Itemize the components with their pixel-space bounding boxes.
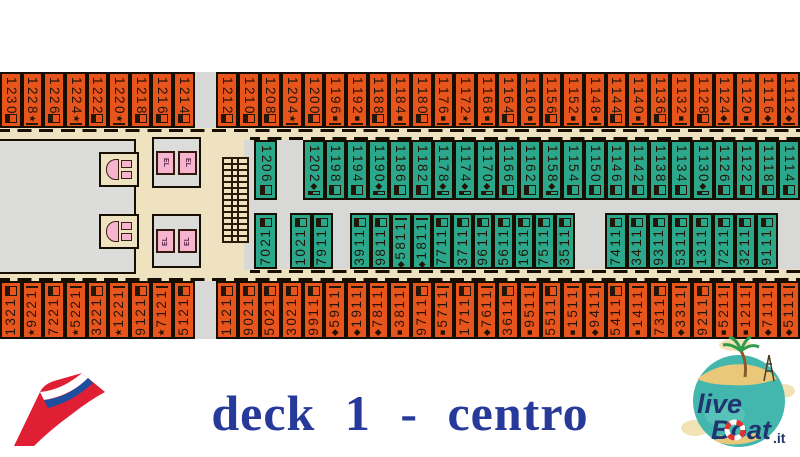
fixture-icon [106,221,119,242]
cabin-symbol-di: ◆ [547,179,556,195]
cabin-symbol-sq: ■ [590,111,599,127]
cabin-1175[interactable]: 1175■ [433,281,455,339]
cabin-number: 1216 [154,76,170,114]
cabin-1155[interactable]: 1155 [541,281,563,339]
cabin-1230[interactable]: 1230 [0,72,22,128]
cabin-1227[interactable]: 1227 [43,281,65,339]
elevator-lobby-bottom: EL EL [152,214,201,268]
cabin-symbol-star: ★ [114,111,123,127]
cabin-1208[interactable]: 1208 [260,72,282,128]
cabin-number: 1115◆ [781,290,797,337]
cabin-number: 1132■ [673,76,689,123]
cabin-number: 1126 [716,144,732,182]
cabin-1177[interactable]: 1177 [432,213,452,269]
cabin-1133[interactable]: 1133◆ [670,281,692,339]
bed-icon [654,185,666,195]
cabin-1149[interactable]: 1149◆ [584,281,606,339]
facility-alcove-top [99,152,139,187]
cabin-1206[interactable]: 1206 [254,140,277,200]
bed-icon [260,185,272,195]
cabin-number: 1136 [652,76,668,114]
cabin-1214[interactable]: 1214 [173,72,195,128]
cabin-symbol-sq: ■ [439,111,448,127]
cabin-number: 1121■ [738,290,754,337]
cabin-1119[interactable]: 1119 [756,213,778,269]
cabin-number: 1205 [262,298,278,336]
cabin-number: 1185◆ [393,222,409,269]
bed-icon [416,185,428,195]
cabin-1201[interactable]: 1201 [290,213,312,269]
cabin-number: 1119 [759,229,775,267]
cabin-1123[interactable]: 1123 [735,213,757,269]
cabin-1228[interactable]: 1228★ [22,72,44,128]
cabin-1183[interactable]: 1183■ [389,281,411,339]
cabin-number: 1174◆ [457,144,473,191]
cabin-number: 1176■ [435,76,451,123]
cabin-number: 1192■ [349,76,365,123]
cabin-symbol-di: ◆ [590,325,599,341]
cabin-number: 1194 [349,144,365,182]
cabin-number: 1166 [500,144,516,182]
cabin-1162[interactable]: 1162 [519,140,541,200]
cabin-1130[interactable]: 1130◆ [692,140,714,200]
cabin-symbol-sq: ■ [439,325,448,341]
cabin-1154[interactable]: 1154 [562,140,584,200]
cabin-symbol-star: ★ [71,325,80,341]
cabin-1138[interactable]: 1138 [649,140,671,200]
cabin-1219[interactable]: 1219 [130,281,152,339]
cabin-number: 1120■ [738,76,754,123]
cabin-symbol-star: ★ [287,111,296,127]
cabin-1128[interactable]: 1128 [692,72,714,128]
cabin-1186[interactable]: 1186 [389,140,411,200]
cabin-1142[interactable]: 1142 [627,140,649,200]
fixture-tabs [121,160,132,179]
cabin-1115[interactable]: 1115◆ [779,281,800,339]
cabin-1137[interactable]: 1137 [649,281,671,339]
cabin-symbol-di: ◆ [785,111,794,127]
cabin-number: 1127 [716,229,732,267]
cabin-1153[interactable]: 1153 [555,213,575,269]
cabin-1198[interactable]: 1198 [325,140,347,200]
cabin-symbol-star: ★ [114,325,123,341]
cabin-1187[interactable]: 1187◆ [368,281,390,339]
cabin-1112[interactable]: 1112◆ [779,72,800,128]
cabin-number: 1196■ [327,76,343,123]
cabin-number: 1230 [3,76,19,114]
cabin-1157[interactable]: 1157 [534,213,554,269]
cabin-1146[interactable]: 1146 [606,140,628,200]
cabin-1221[interactable]: 1221★ [108,281,130,339]
cabin-symbol-di: ◆ [763,111,772,127]
cabin-number: 1117◆ [760,290,776,337]
cabin-1135[interactable]: 1135 [670,213,692,269]
cabin-number: 1118 [760,144,776,182]
cabin-number: 1206 [258,144,274,182]
cabin-number: 1149◆ [587,290,603,337]
cabin-number: 1226 [46,76,62,114]
cabin-1139[interactable]: 1139 [648,213,670,269]
cabin-1117[interactable]: 1117◆ [757,281,779,339]
cabin-number: 1227 [46,298,62,336]
cabin-1191[interactable]: 1191◆ [346,281,368,339]
cabin-number: 1193 [352,229,368,267]
cabin-number: 1211 [219,298,235,336]
elevator-icon[interactable]: EL [178,229,197,253]
cabin-number: 1224★ [68,76,84,123]
cabin-1224[interactable]: 1224★ [65,72,87,128]
cabin-1160[interactable]: 1160■ [519,72,541,128]
cabin-number: 1112◆ [781,76,797,123]
cabin-1178[interactable]: 1178◆ [433,140,455,200]
cabin-symbol-star: ★ [28,111,37,127]
bed-icon [567,185,579,195]
cabin-1151[interactable]: 1151■ [562,281,584,339]
cabin-number: 1197 [314,229,330,267]
cabin-number: 1179 [414,298,430,336]
cabin-1172[interactable]: 1172★ [454,72,476,128]
cabin-1134[interactable]: 1134 [670,140,692,200]
cabin-symbol-sq: ■ [742,111,751,127]
cabin-number: 1177 [434,229,450,267]
cabin-number: 1218 [133,76,149,114]
cabin-1223[interactable]: 1223 [87,281,109,339]
cabin-1185[interactable]: 1185◆ [391,213,411,269]
cabin-symbol-di: ◆ [482,179,491,195]
cabin-1210[interactable]: 1210 [238,72,260,128]
cabin-1202[interactable]: 1202◆ [303,140,325,200]
cabin-1179[interactable]: 1179 [411,281,433,339]
cabin-1140[interactable]: 1140■ [627,72,649,128]
cabin-1118[interactable]: 1118 [757,140,779,200]
cabin-1148[interactable]: 1148■ [584,72,606,128]
deck-gap [277,213,290,269]
cabin-number: 1143 [629,229,645,267]
cabin-1163[interactable]: 1163 [497,281,519,339]
cabin-1181[interactable]: 1181◆ [412,213,432,269]
elevator-icon[interactable]: EL [156,229,175,253]
cabin-number: 1125■ [716,290,732,337]
cabin-number: 1122 [738,144,754,182]
cabin-number: 1215 [176,298,192,336]
cabin-number: 1155 [543,298,559,336]
corridor-doors-top-outer [0,129,800,132]
cabin-number: 1154 [565,144,581,182]
cabin-1150[interactable]: 1150 [584,140,606,200]
deck-gap [195,281,217,339]
cabin-number: 1207 [258,229,274,267]
cabin-symbol-sq: ■ [569,325,578,341]
cabin-1122[interactable]: 1122 [735,140,757,200]
cabin-number: 1175■ [435,290,451,337]
cabin-symbol-di: ◆ [309,179,318,195]
cabin-symbol-star: ★ [460,111,469,127]
cabin-1217[interactable]: 1217★ [151,281,173,339]
cabin-1169[interactable]: 1169 [473,213,493,269]
cabin-number: 1137 [652,298,668,336]
cabin-1215[interactable]: 1215 [173,281,195,339]
cabin-1161[interactable]: 1161 [514,213,534,269]
cabin-symbol-di: ◆ [331,325,340,341]
elevator-icon[interactable]: EL [156,151,175,175]
cabin-symbol-sq: ■ [569,111,578,127]
cabin-number: 1161 [516,229,532,267]
cabin-number: 1148■ [587,76,603,123]
cabin-number: 1147 [608,229,624,267]
bed-icon [610,185,622,195]
cabin-1143[interactable]: 1143 [627,213,649,269]
cabin-1129[interactable]: 1129 [692,281,714,339]
cabin-1182[interactable]: 1182 [411,140,433,200]
cabin-1124[interactable]: 1124◆ [714,72,736,128]
cabin-1132[interactable]: 1132■ [670,72,692,128]
cabin-number: 1141■ [630,290,646,337]
cabin-number: 1128 [695,76,711,114]
cabin-number: 1203 [284,298,300,336]
cabin-1165[interactable]: 1165 [493,213,513,269]
cabin-1147[interactable]: 1147 [605,213,627,269]
cabin-number: 1162 [522,144,538,182]
cabin-number: 1140■ [630,76,646,123]
cabin-1174[interactable]: 1174◆ [454,140,476,200]
cabin-symbol-sq: ■ [677,111,686,127]
cabin-1141[interactable]: 1141■ [627,281,649,339]
cabin-symbol-di: ◆ [720,111,729,127]
liveboat-logo: live Boat .it [675,333,800,457]
cabin-1225[interactable]: 1225★ [65,281,87,339]
liveboat-it-text: .it [773,430,786,446]
cabin-1188[interactable]: 1188 [368,72,390,128]
cabin-1211[interactable]: 1211 [216,281,238,339]
deck-gap [333,213,350,269]
cabin-number: 1151■ [565,290,581,337]
cabin-1229[interactable]: 1229★ [22,281,44,339]
cabin-number: 1198 [327,144,343,182]
deck-plan-page: EL EL EL EL 12301228★12261224★12221220★1… [0,0,800,457]
cabin-1209[interactable]: 1209 [238,281,260,339]
cabin-symbol-star: ★ [158,325,167,341]
cabin-1204[interactable]: 1204★ [281,72,303,128]
cabin-1166[interactable]: 1166 [497,140,519,200]
page-title: deck 1 - centro [150,378,650,448]
cabin-1205[interactable]: 1205 [260,281,282,339]
cabin-number: 1130◆ [695,144,711,191]
cabin-symbol-di: ◆ [417,257,426,273]
facility-alcove-bottom [99,214,139,249]
elevator-icon[interactable]: EL [178,151,197,175]
cabin-number: 1153 [557,229,573,267]
bed-icon [589,185,601,195]
cabin-1145[interactable]: 1145 [606,281,628,339]
cabin-1196[interactable]: 1196■ [324,72,346,128]
cabin-number: 1223 [89,298,105,336]
cabin-1125[interactable]: 1125■ [714,281,736,339]
cabin-number: 1222 [89,76,105,114]
cabin-1121[interactable]: 1121■ [735,281,757,339]
cabin-number: 1212 [219,76,235,114]
cabin-number: 1190◆ [371,144,387,191]
cabin-1180[interactable]: 1180 [411,72,433,128]
bed-icon [675,185,687,195]
cabin-1207[interactable]: 1207 [254,213,277,269]
bed-icon [783,185,795,195]
cabin-number: 1220★ [111,76,127,123]
cabin-number: 1195◆ [327,290,343,337]
cabin-number: 1178◆ [435,144,451,191]
cabin-symbol-di: ◆ [374,179,383,195]
cabin-number: 1225★ [68,290,84,337]
cabin-number: 1168■ [479,76,495,123]
cabin-number: 1171 [457,298,473,336]
cabin-number: 1170◆ [479,144,495,191]
cabin-1120[interactable]: 1120■ [735,72,757,128]
cabin-number: 1138 [652,144,668,182]
cabin-1144[interactable]: 1144 [606,72,628,128]
cabin-number: 1217★ [154,290,170,337]
cabin-number: 1181◆ [414,222,430,269]
cabin-1218[interactable]: 1218 [130,72,152,128]
cabin-1171[interactable]: 1171 [454,281,476,339]
cabin-symbol-sq: ■ [396,325,405,341]
cabin-number: 1202◆ [306,144,322,191]
cabin-number: 1187◆ [370,290,386,337]
cabin-1158[interactable]: 1158◆ [541,140,563,200]
cabin-symbol-di: ◆ [698,179,707,195]
bed-icon [524,185,536,195]
cabin-symbol-di: ◆ [461,179,470,195]
cabin-1199[interactable]: 1199 [303,281,325,339]
cabin-1197[interactable]: 1197 [312,213,334,269]
cabin-1168[interactable]: 1168■ [476,72,498,128]
deck-gap [575,213,605,269]
cabin-1152[interactable]: 1152■ [562,72,584,128]
cabin-number: 1114 [781,144,797,182]
cabin-1170[interactable]: 1170◆ [476,140,498,200]
cabin-row-outer-bottom: 12311229★12271225★12231221★12191217★1215… [0,281,800,339]
cabin-number: 1184■ [392,76,408,123]
bed-icon [351,185,363,195]
cabin-row-outer-top: 12301228★12261224★12221220★1218121612141… [0,72,800,128]
cabin-1114[interactable]: 1114 [778,140,800,200]
cabin-number: 1208 [262,76,278,114]
cabin-number: 1124◆ [716,76,732,123]
cabin-number: 1160■ [522,76,538,123]
cabin-number: 1210 [241,76,257,114]
deck-gap [195,72,217,128]
cabin-number: 1172★ [457,76,473,123]
cabin-1126[interactable]: 1126 [714,140,736,200]
cabin-number: 1167◆ [479,290,495,337]
bed-icon [632,185,644,195]
cabin-symbol-di: ◆ [397,257,406,273]
cabin-number: 1146 [608,144,624,182]
cabin-symbol-sq: ■ [396,111,405,127]
cabin-symbol-di: ◆ [352,325,361,341]
cabin-number: 1156 [543,76,559,114]
cabin-symbol-sq: ■ [525,111,534,127]
cabin-1216[interactable]: 1216 [151,72,173,128]
cabin-number: 1200 [306,76,322,114]
cabin-number: 1186 [392,144,408,182]
cabin-symbol-star: ★ [71,111,80,127]
cabin-number: 1116◆ [760,76,776,123]
cabin-1192[interactable]: 1192■ [346,72,368,128]
cabin-number: 1169 [475,229,491,267]
cabin-1190[interactable]: 1190◆ [368,140,390,200]
cabin-number: 1219 [133,298,149,336]
cabin-number: 1123 [737,229,753,267]
cabin-1200[interactable]: 1200 [303,72,325,128]
cabin-1184[interactable]: 1184■ [389,72,411,128]
cabin-number: 1133◆ [673,290,689,337]
cabin-1167[interactable]: 1167◆ [476,281,498,339]
bed-icon [740,185,752,195]
bed-icon [502,185,514,195]
cabin-number: 1145 [608,298,624,336]
cabin-1203[interactable]: 1203 [281,281,303,339]
cabin-number: 1228★ [24,76,40,123]
cabin-1189[interactable]: 1189 [371,213,391,269]
cabin-number: 1180 [414,76,430,114]
cabin-1220[interactable]: 1220★ [108,72,130,128]
cabin-row-inner-upper: 12061202◆119811941190◆118611821178◆1174◆… [254,140,800,200]
cabin-row-inner-lower: 120712011197119311891185◆1181◆1177117311… [254,213,778,269]
cabin-1131[interactable]: 1131 [691,213,713,269]
cabin-number: 1182 [414,144,430,182]
cabin-number: 1183■ [392,290,408,337]
cabin-number: 1139 [651,229,667,267]
cabin-number: 1157 [536,229,552,267]
elevator-lobby-top: EL EL [152,137,201,188]
cabin-1159[interactable]: 1159■ [519,281,541,339]
deck-gap [277,140,303,200]
cabin-number: 1129 [695,298,711,336]
cabin-symbol-sq: ■ [331,111,340,127]
cabin-1136[interactable]: 1136 [649,72,671,128]
cabin-1164[interactable]: 1164 [497,72,519,128]
cabin-1226[interactable]: 1226 [43,72,65,128]
cabin-1156[interactable]: 1156 [541,72,563,128]
bed-icon [329,185,341,195]
cabin-number: 1199 [306,298,322,336]
cabin-number: 1191◆ [349,290,365,337]
cabin-number: 1214 [176,76,192,114]
cabin-number: 1152■ [565,76,581,123]
cabin-1231[interactable]: 1231 [0,281,22,339]
fixture-tabs [121,222,132,241]
cabin-number: 1131 [694,229,710,267]
cabin-symbol-sq: ■ [352,111,361,127]
cabin-1195[interactable]: 1195◆ [324,281,346,339]
cabin-1173[interactable]: 1173 [452,213,472,269]
cabin-1127[interactable]: 1127 [713,213,735,269]
cabin-number: 1165 [496,229,512,267]
cabin-1176[interactable]: 1176■ [433,72,455,128]
cabin-1212[interactable]: 1212 [216,72,238,128]
cabin-number: 1134 [673,144,689,182]
cabin-number: 1135 [673,229,689,267]
cabin-1222[interactable]: 1222 [87,72,109,128]
fixture-icon [106,159,119,180]
cabin-number: 1158◆ [544,144,560,191]
cabin-1116[interactable]: 1116◆ [757,72,779,128]
cabin-1193[interactable]: 1193 [350,213,370,269]
cabin-number: 1173 [455,229,471,267]
cabin-1194[interactable]: 1194 [346,140,368,200]
cabin-symbol-star: ★ [28,325,37,341]
cabin-number: 1209 [241,298,257,336]
cabin-number: 1144 [608,76,624,114]
